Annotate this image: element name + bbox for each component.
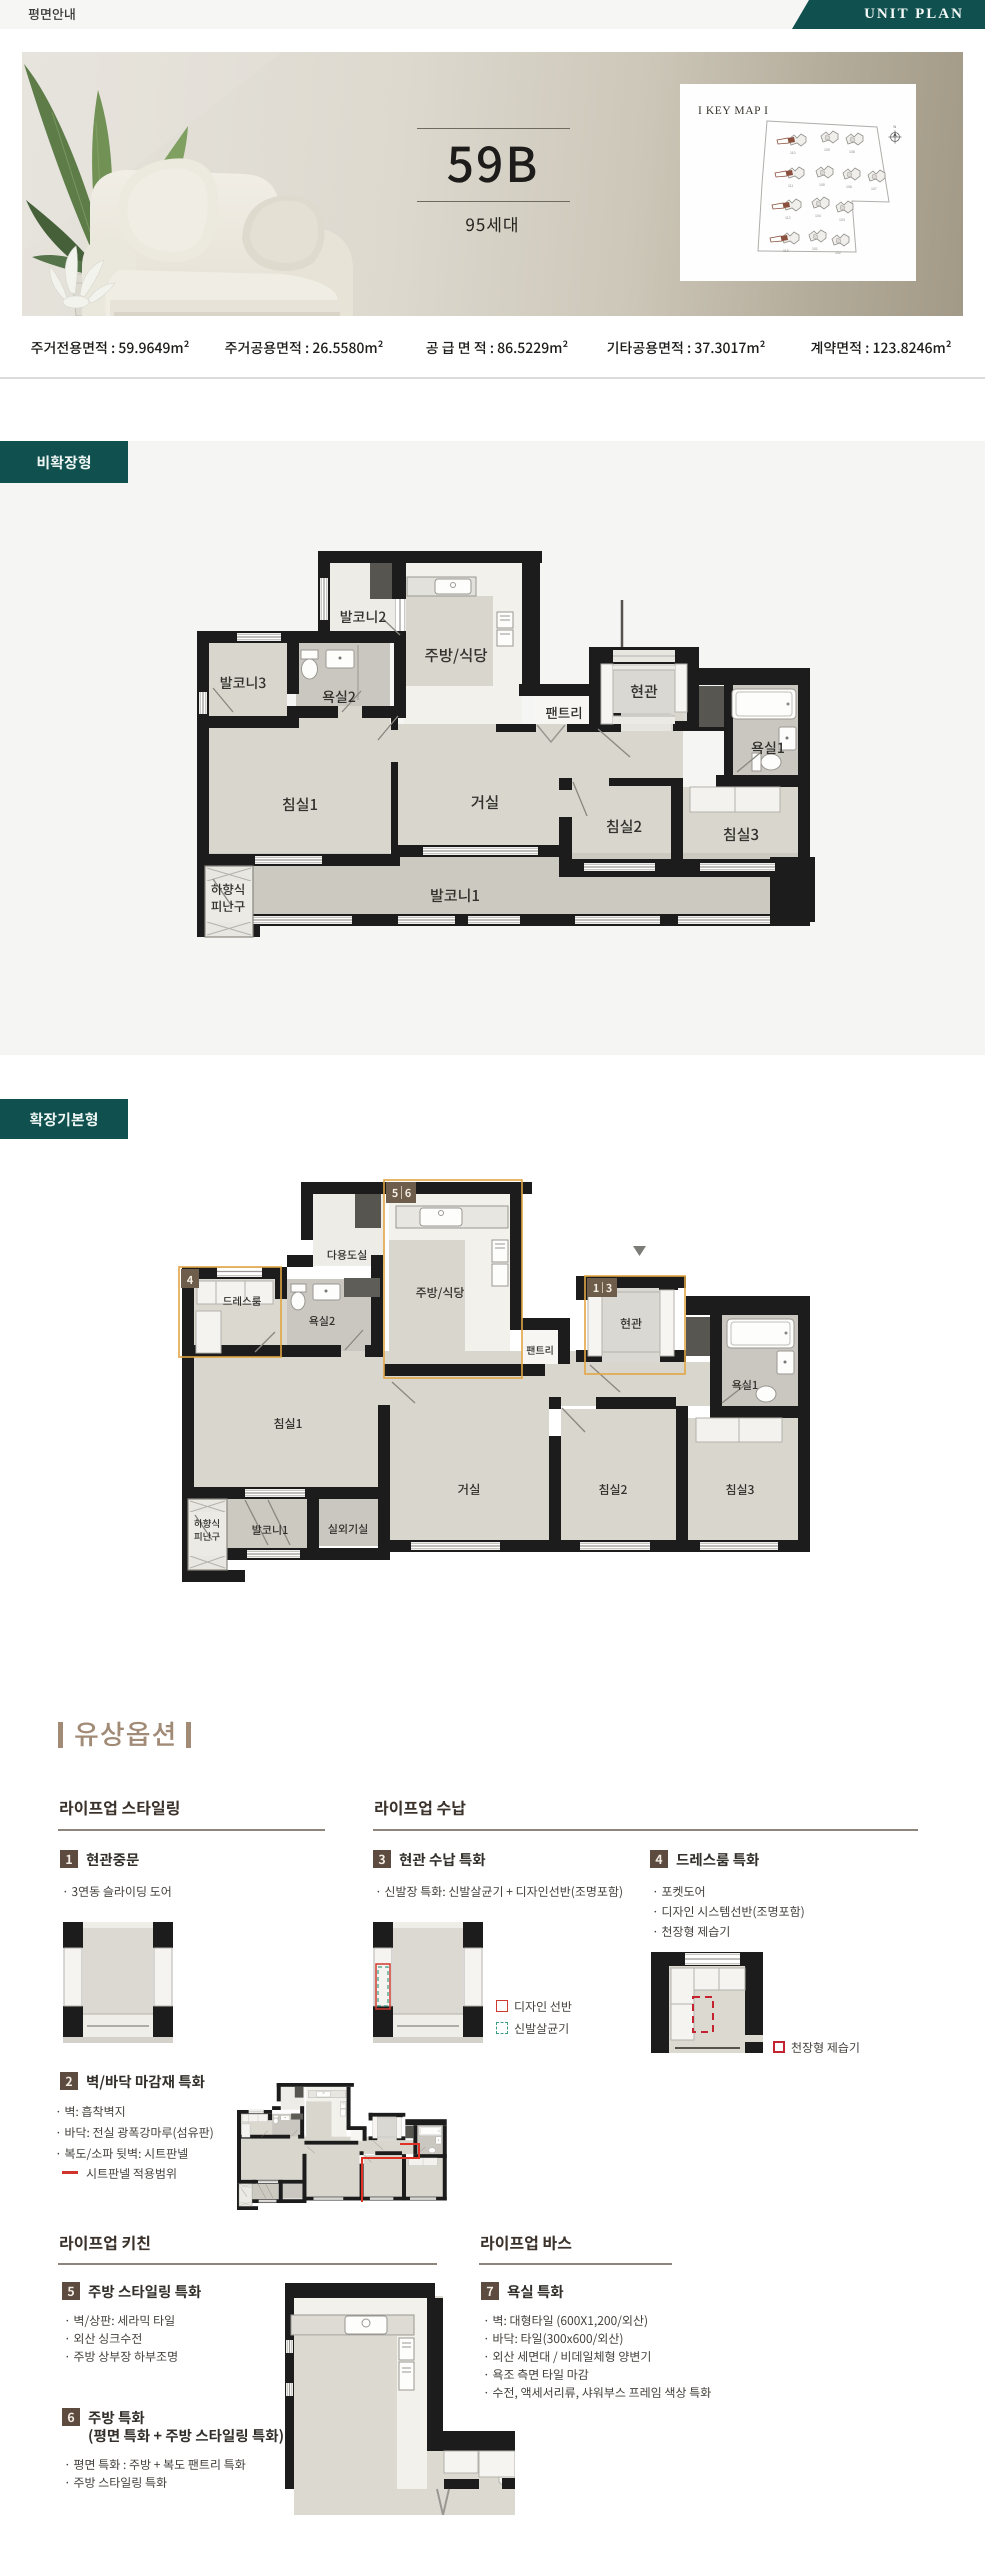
svg-text:101: 101: [812, 247, 818, 251]
svg-text:107: 107: [871, 187, 877, 191]
svg-text:112: 112: [785, 216, 791, 220]
svg-text:N: N: [894, 125, 897, 129]
svg-text:102: 102: [835, 251, 841, 255]
svg-text:I KEY MAP I: I KEY MAP I: [698, 105, 769, 117]
svg-text:108: 108: [849, 150, 855, 154]
svg-text:109: 109: [824, 148, 830, 152]
svg-text:104: 104: [815, 214, 821, 218]
svg-text:103: 103: [839, 218, 845, 222]
svg-text:110: 110: [790, 151, 796, 155]
svg-text:111: 111: [788, 184, 793, 188]
svg-text:105: 105: [819, 183, 825, 187]
svg-text:113: 113: [783, 249, 789, 253]
svg-text:106: 106: [846, 185, 852, 189]
